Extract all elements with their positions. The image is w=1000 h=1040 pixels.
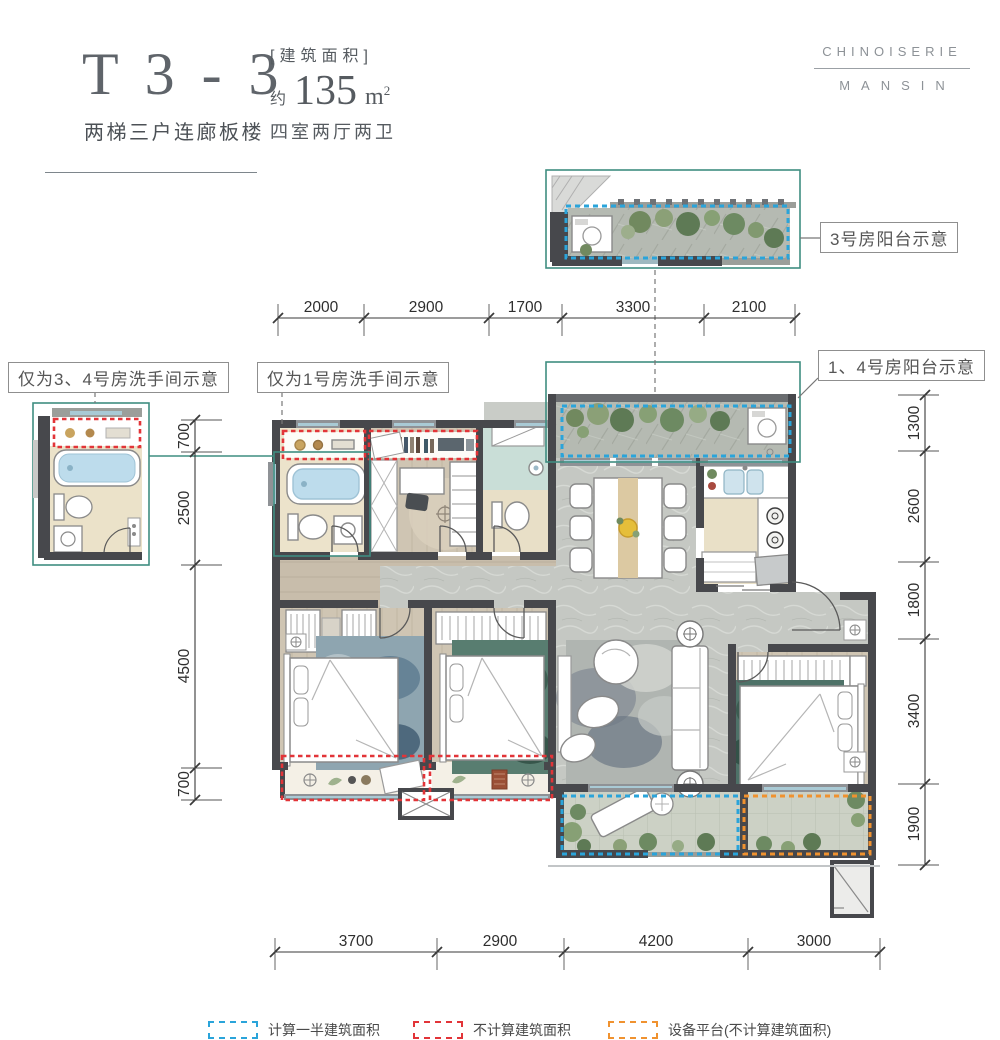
- area-unit: m2: [365, 83, 390, 111]
- area-info: [建筑面积] 约 135 m2 四室两厅两卫: [270, 42, 396, 144]
- legend-item-excluded: 不计算建筑面积: [413, 1020, 571, 1040]
- legend-label-half-area: 计算一半建筑面积: [268, 1020, 380, 1040]
- legend-swatch-excluded: [413, 1021, 463, 1039]
- callout-balcony-room3: 3号房阳台示意: [820, 222, 958, 253]
- dim-top-4: 3300: [616, 299, 651, 316]
- dim-top-1: 2000: [304, 299, 339, 316]
- area-value: 135: [294, 70, 357, 112]
- living-room-furniture: [556, 621, 708, 797]
- dim-top-3: 1700: [508, 299, 543, 316]
- brand-logo-divider: [814, 68, 970, 69]
- bathroom-1-fixtures: [284, 432, 365, 544]
- unit-model-title: T 3 - 3: [82, 40, 285, 109]
- dining-furniture: [570, 478, 686, 578]
- legend-item-equipment: 设备平台(不计算建筑面积): [608, 1020, 831, 1040]
- dim-right-1: 1300: [906, 405, 923, 440]
- dim-left-2: 2500: [176, 490, 193, 525]
- dim-bottom-1: 3700: [339, 933, 374, 950]
- room-count-label: 四室两厅两卫: [270, 118, 396, 144]
- callout-balcony-room14: 1、4号房阳台示意: [818, 350, 985, 381]
- floorplan-page: 2000 2900 1700 3300 2100 3700 2900 4200 …: [0, 0, 1000, 1040]
- dim-left-4: 700: [176, 771, 193, 797]
- dim-right-3: 1800: [906, 582, 923, 617]
- brand-logo-line1: CHINOISERIE: [812, 44, 972, 59]
- brand-logo: CHINOISERIE MANSIN: [812, 44, 972, 93]
- dim-left-1: 700: [176, 423, 193, 449]
- shaft-bottom-right: [832, 862, 872, 916]
- dim-right-2: 2600: [906, 488, 923, 523]
- area-approx-prefix: 约: [270, 85, 286, 109]
- study-furniture: [370, 432, 481, 552]
- callout-bath-room1: 仅为1号房洗手间示意: [257, 362, 449, 393]
- dim-right-5: 1900: [906, 806, 923, 841]
- area-unit-superscript: 2: [384, 83, 391, 98]
- detail-bath-room34: [33, 403, 149, 565]
- floor-plan-svg: 2000 2900 1700 3300 2100 3700 2900 4200 …: [0, 0, 1000, 1040]
- legend-label-equipment: 设备平台(不计算建筑面积): [668, 1020, 831, 1040]
- unit-model-subtitle: 两梯三户连廊板楼: [84, 116, 264, 145]
- legend-swatch-half-area: [208, 1021, 258, 1039]
- dim-left-3: 4500: [176, 648, 193, 683]
- callout-bath-room34: 仅为3、4号房洗手间示意: [8, 362, 229, 393]
- dim-right-4: 3400: [906, 693, 923, 728]
- title-divider: [45, 172, 257, 173]
- legend-swatch-equipment: [608, 1021, 658, 1039]
- dim-bottom-3: 4200: [639, 933, 674, 950]
- shaft-bottom-left: [400, 790, 452, 818]
- dim-bottom-2: 2900: [483, 933, 518, 950]
- dim-top-2: 2900: [409, 299, 444, 316]
- legend-item-half-area: 计算一半建筑面积: [208, 1020, 380, 1040]
- detail-balcony-room3: [546, 170, 800, 268]
- legend-label-excluded: 不计算建筑面积: [473, 1020, 571, 1040]
- area-label: [建筑面积]: [270, 42, 396, 66]
- dim-top-5: 2100: [732, 299, 767, 316]
- bedroom-2-furniture: [436, 612, 552, 774]
- dim-bottom-4: 3000: [797, 933, 832, 950]
- brand-logo-line2: MANSIN: [812, 78, 972, 93]
